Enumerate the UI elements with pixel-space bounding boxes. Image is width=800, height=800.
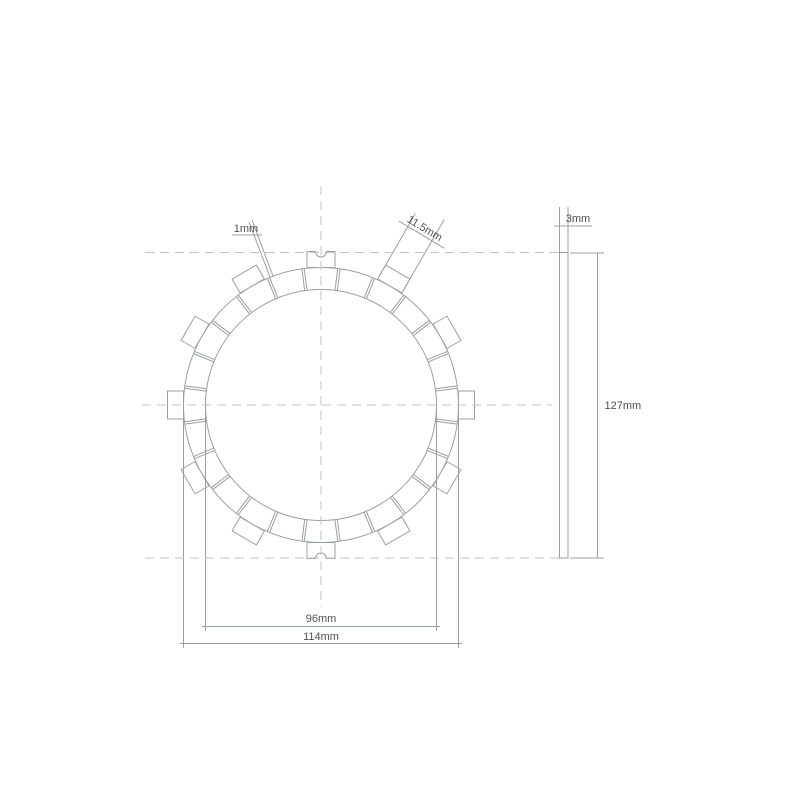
drive-tab [378,517,410,545]
pad-groove-line [238,295,251,312]
pad-groove-line [392,297,405,315]
side-view [560,253,569,559]
dimension-label-96mm: 96mm [306,613,337,625]
pad-groove-line [412,476,430,489]
pad-groove-line [211,322,228,335]
drive-tab [232,265,264,293]
pad-groove-line [211,474,228,487]
side-view-plate [560,253,569,559]
drive-tab [232,517,264,545]
drive-tab [433,462,461,494]
dimension-label-3mm: 3mm [566,213,590,225]
pad-groove-line [213,476,231,489]
pad-groove-line [236,496,249,514]
pad-groove-line [238,497,251,514]
drive-tab [378,265,410,293]
dimension-overall-height: 127mm [570,253,641,558]
drive-tab [181,316,209,348]
dimension-thickness: 3mm [554,207,592,253]
dimension-label-127mm: 127mm [605,400,642,412]
pad-groove-line [412,320,430,333]
pad-groove-line [390,497,403,514]
drawing-canvas: 96mm 114mm 3mm 127mm [0,0,800,800]
centerlines [142,186,559,607]
pad-groove-line [213,320,231,333]
drive-tab [181,462,209,494]
pad-groove-line [392,496,405,514]
pad-groove-line [413,474,430,487]
dimension-label-1mm: 1mm [234,223,258,235]
pad-groove-line [390,295,403,312]
pad-groove-line [236,297,249,315]
technical-drawing: 96mm 114mm 3mm 127mm [0,0,800,800]
drive-tab [433,316,461,348]
pad-groove-line [413,322,430,335]
dimension-label-114mm: 114mm [303,631,339,643]
